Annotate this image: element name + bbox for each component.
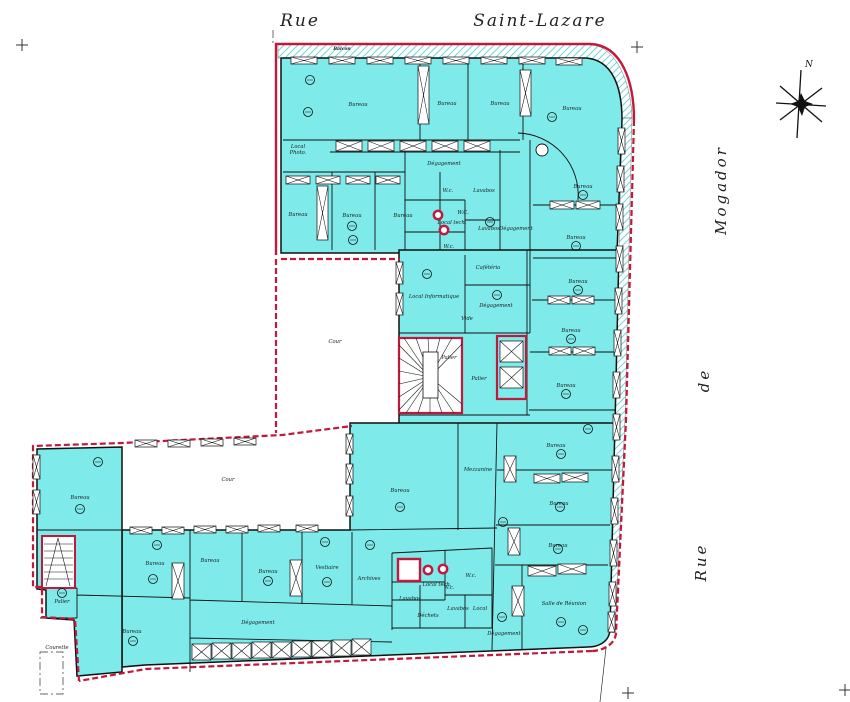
structural-column: [536, 144, 548, 156]
room-label: Local tech.: [437, 220, 467, 226]
room-label: W.c.: [444, 585, 455, 591]
room-label: Dégagement: [426, 160, 461, 167]
room-label: Bureau: [199, 558, 219, 564]
room-label: W.C.: [457, 210, 469, 216]
room-label: Bureau: [547, 543, 567, 549]
room-label: Bureau: [341, 213, 361, 219]
room-label: Bureau: [548, 501, 568, 507]
room-label: Local Informatique: [408, 294, 459, 300]
room-label: Cafétéria: [476, 264, 500, 271]
room-label: Bureau: [121, 629, 141, 635]
room-label: Courette: [45, 645, 68, 651]
room-label: Salle de Réunion: [542, 600, 587, 607]
room-label: Lavabos: [472, 188, 495, 194]
room-label: Bureau: [144, 561, 164, 567]
column-marker-icon: [434, 211, 442, 219]
room-label: Bureau: [436, 101, 456, 107]
room-label: Cour: [329, 339, 342, 345]
room-label: Bureau: [555, 383, 575, 389]
room-label: Dégagement: [240, 619, 275, 626]
room-label: Bureau: [389, 488, 409, 494]
room-label: Dégagement: [486, 630, 521, 637]
north-label: N: [804, 60, 814, 70]
street-label-de: de: [695, 368, 713, 392]
room-label: Bureau: [567, 279, 587, 285]
street-label-rue-top: Rue: [279, 11, 320, 31]
floor-plan-page: N Rue Saint-Lazare Mogador de Rue Balcon…: [0, 0, 850, 702]
room-label: Mezzanine: [463, 467, 492, 473]
column-marker-icon: [440, 226, 448, 234]
room-label: Bureau: [565, 235, 585, 241]
survey-line: [600, 648, 606, 702]
room-label: Bureau: [545, 443, 565, 449]
room-label: Vestiaire: [315, 565, 338, 571]
room-label: Palier: [440, 355, 457, 361]
staircase-secondary: [42, 536, 75, 588]
room-label: Lavabos: [398, 596, 421, 602]
room-label: Palier: [53, 599, 70, 605]
room-label: Palier: [470, 376, 487, 382]
street-label-saint-lazare: Saint-Lazare: [473, 11, 606, 31]
room-label: Bureau: [347, 102, 367, 108]
duct-shaft: [398, 559, 420, 581]
boundary-courtyard: [276, 259, 400, 433]
north-arrow: N: [776, 60, 826, 138]
street-label-rue-right: Rue: [692, 543, 710, 583]
room-label: Lavabos: [446, 606, 469, 612]
room-label: W.c.: [444, 244, 455, 250]
room-label: Bureau: [572, 184, 592, 190]
room-label: W.c.: [443, 188, 454, 194]
room-label: Lavabos: [477, 226, 500, 232]
room-label: Bureau: [561, 106, 581, 112]
room-label: Vide: [461, 316, 473, 322]
room-label: Déchets: [416, 612, 439, 619]
staircase-main: [399, 338, 462, 413]
room-label: Cour: [222, 477, 235, 483]
room-label: Bureau: [69, 495, 89, 501]
room-label: Bureau: [287, 212, 307, 218]
room-label: Bureau: [392, 213, 412, 219]
room-label: W.c.: [466, 573, 477, 579]
column-marker-icon: [439, 565, 447, 573]
room-label: Bureau: [257, 569, 277, 575]
building-footprint: [37, 58, 622, 676]
room-label: Bureau: [489, 101, 509, 107]
floor-plan-canvas: N Rue Saint-Lazare Mogador de Rue Balcon…: [0, 0, 850, 702]
column-marker-icon: [424, 566, 432, 574]
room-label: Bureau: [560, 328, 580, 334]
room-label: Dégagement: [478, 302, 513, 309]
room-label: Local: [472, 606, 488, 612]
room-label: Archives: [357, 576, 381, 582]
room-label: Photo.: [289, 150, 307, 156]
balcony-label: Balcon: [332, 46, 350, 52]
street-label-mogador: Mogador: [712, 145, 730, 236]
room-label: Dégagement: [498, 225, 533, 232]
